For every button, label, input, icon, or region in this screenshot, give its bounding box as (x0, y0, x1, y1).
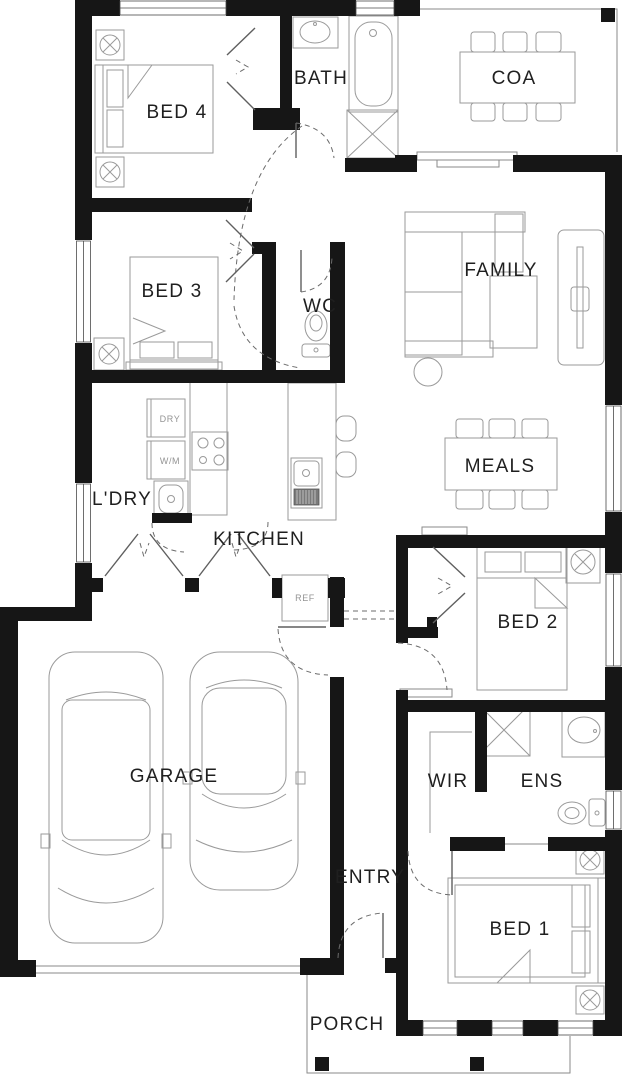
window-icon (356, 1, 394, 15)
opening-dashes (344, 611, 396, 619)
laundry-trough-icon (154, 481, 188, 517)
bathroom-vanity-icon (293, 17, 338, 48)
coffee-table-icon (490, 276, 537, 348)
window-icon (77, 484, 91, 562)
washer-label: W/M (160, 456, 180, 466)
bedside-table-icon (96, 157, 124, 187)
bathtub-icon (349, 16, 398, 112)
door-swing-arc (278, 629, 328, 675)
sofa-icon (405, 212, 525, 386)
room-label-meals: MEALS (465, 456, 535, 477)
window-icon (492, 1021, 523, 1035)
sliding-door-icon (417, 152, 517, 167)
door-swing-arc (301, 258, 332, 292)
tv-unit-icon (558, 230, 604, 365)
walls-path (0, 0, 622, 1071)
door-swing-arc (438, 578, 452, 594)
door-swing-arc (140, 543, 149, 557)
bedside-table-icon (576, 986, 604, 1014)
room-label-garage: GARAGE (130, 766, 219, 787)
room-label-family: FAMILY (464, 260, 537, 281)
fridge-label: REF (295, 593, 315, 603)
room-label-wc: WC (303, 296, 337, 317)
room-label-bed3: BED 3 (142, 281, 203, 302)
door-swing-arc (296, 123, 334, 158)
room-label-bath: BATH (294, 68, 348, 89)
door-swing-arc (230, 243, 243, 259)
kitchen-bench (190, 383, 227, 515)
door-swing-arc (152, 523, 184, 552)
bedside-table-icon (566, 543, 600, 583)
window-icon (606, 791, 621, 829)
room-label-ldry: L'DRY (92, 489, 152, 510)
room-label-porch: PORCH (310, 1014, 385, 1035)
window-icon (606, 406, 621, 511)
door-swing-arc (398, 643, 447, 690)
bathroom-vanity-icon (562, 705, 605, 757)
door-leaf (105, 534, 183, 576)
bedside-table-icon (96, 30, 124, 60)
room-label-bed4: BED 4 (147, 102, 208, 123)
shower-icon (347, 110, 398, 158)
bed-icon (126, 257, 222, 370)
room-label-entry: ENTRY (335, 867, 405, 888)
window-icon (606, 574, 621, 666)
cooktop-icon (192, 432, 228, 470)
floor-plan-svg: BED 4 BATH COA FAMILY BED 3 WC L'DRY KIT… (0, 0, 622, 1079)
room-label-coa: COA (492, 68, 537, 89)
door-swing-arc (236, 60, 248, 74)
window-icon (120, 1, 226, 15)
room-label-bed2: BED 2 (498, 612, 559, 633)
room-label-wir: WIR (428, 771, 469, 792)
toilet-icon (558, 799, 605, 826)
door-leaf (227, 28, 255, 110)
window-icon (77, 241, 91, 342)
kitchen-sink-icon (291, 458, 322, 508)
door-swing-arc (408, 851, 452, 895)
door-leaf (433, 547, 465, 623)
room-label-bed1: BED 1 (490, 919, 551, 940)
floor-plan: BED 4 BATH COA FAMILY BED 3 WC L'DRY KIT… (0, 0, 622, 1079)
stool-icon (336, 452, 356, 477)
door-leaf (226, 220, 254, 282)
stool-icon (336, 416, 356, 441)
window-icon (423, 1021, 457, 1035)
bedside-table-icon (94, 338, 124, 370)
garage-door (36, 966, 306, 973)
door-swing-arc (338, 913, 383, 958)
robe-recess (422, 527, 467, 535)
window-icon (558, 1021, 593, 1035)
room-label-ens: ENS (521, 771, 564, 792)
dryer-label: DRY (160, 414, 181, 424)
toilet-icon (302, 311, 330, 357)
car-icon (41, 652, 171, 943)
room-label-kitchen: KITCHEN (213, 529, 305, 550)
